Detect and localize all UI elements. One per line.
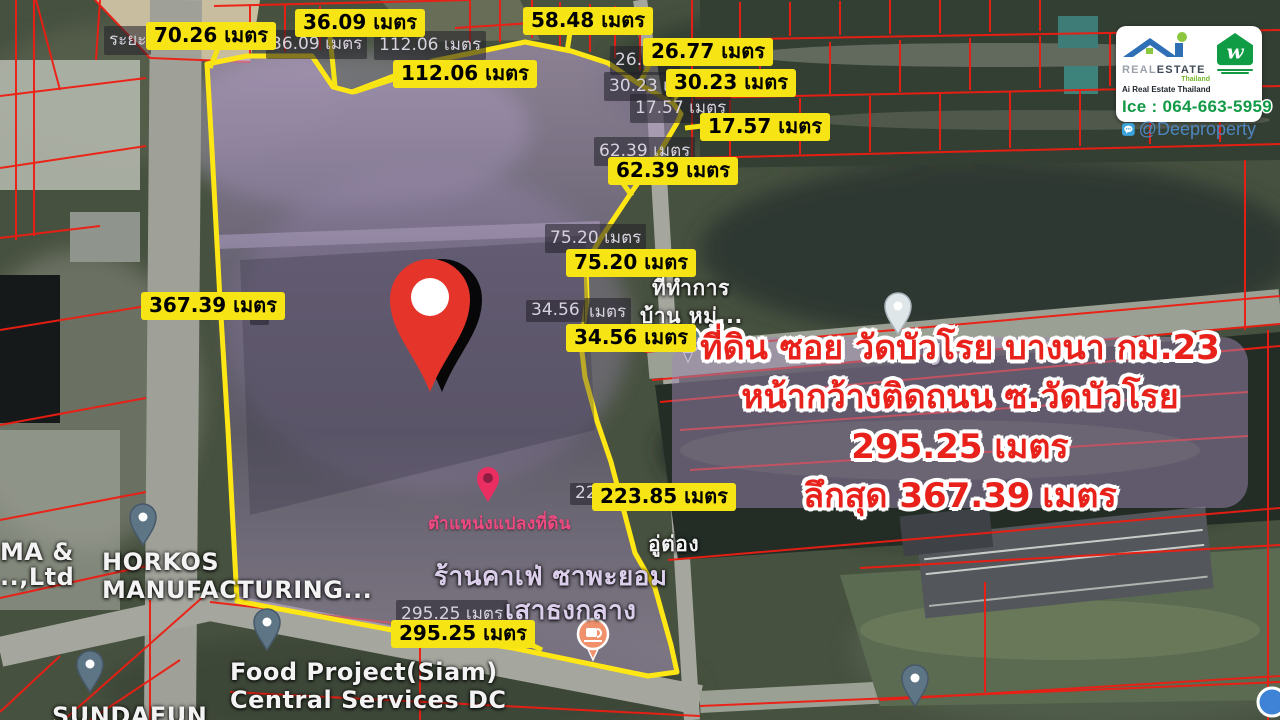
contact-phone: Ice : 064-663-5959 — [1122, 97, 1256, 117]
realestate-house-icon — [1122, 32, 1196, 60]
line-account-id: @Deeproperty — [1139, 119, 1256, 140]
w-logo-fineprint — [1221, 72, 1249, 74]
poi-pin-dot — [263, 618, 272, 627]
building-block — [0, 60, 140, 190]
realestate-wordmark: REALESTATE — [1122, 65, 1210, 76]
map-place-ma-1: MA & — [0, 538, 74, 566]
listing-image: ระยะ 36.09 เมตร 112.06 เมตร 26.77 เ 30.2… — [0, 0, 1280, 720]
w-house-icon: w — [1216, 32, 1254, 68]
w-logo: w — [1214, 32, 1256, 74]
info-line-1: ที่ดิน ซอย วัดบัวโรย บางนา กม.23 — [672, 324, 1248, 373]
measure-callout-223-85: 223.85 เมตร — [592, 483, 736, 511]
info-line-3: ลึกสุด 367.39 เมตร — [672, 472, 1248, 521]
pin-inner-circle — [411, 278, 449, 316]
map-place-garage: อู่ต่อง — [648, 528, 699, 561]
poi-pin-dot — [139, 513, 148, 522]
property-info-box: ที่ดิน ซอย วัดบัวโรย บางนา กม.23 หน้ากว้… — [672, 337, 1248, 508]
line-chat-icon — [1122, 121, 1135, 138]
realestate-thailand: Thailand — [1122, 76, 1210, 83]
realestate-tagline: Ai Real Estate Thailand — [1122, 85, 1210, 94]
poi-pin-dot — [894, 302, 903, 311]
poi-pin-dot — [86, 660, 95, 669]
dark-building — [0, 275, 60, 423]
measure-callout-58-48: 58.48 เมตร — [523, 7, 653, 35]
poi-pin-dot — [911, 674, 920, 683]
map-place-foodproject-1: Food Project(Siam) — [230, 658, 498, 686]
measure-callout-75-20: 75.20 เมตร — [566, 249, 696, 277]
branding-card: REALESTATE Thailand Ai Real Estate Thail… — [1116, 26, 1262, 122]
building-block — [70, 212, 140, 262]
measure-callout-70-26: 70.26 เมตร — [146, 22, 276, 50]
map-place-horkos-1: HORKOS — [102, 548, 219, 576]
measure-callout-17-57: 17.57 เมตร — [700, 113, 830, 141]
measure-callout-62-39: 62.39 เมตร — [608, 157, 738, 185]
measure-callout-30-23: 30.23 เมตร — [666, 69, 796, 97]
measure-callout-112-06: 112.06 เมตร — [393, 60, 537, 88]
map-measure-label: ระยะ — [104, 26, 151, 55]
field-streak — [860, 600, 1260, 660]
map-place-sundafun: SUNDAFUN — [52, 702, 207, 720]
measure-callout-36-09: 36.09 เมตร — [295, 9, 425, 37]
w-logo-fineprint — [1217, 69, 1253, 71]
map-place-foodproject-2: Central Services DC — [230, 686, 507, 714]
teal-pond — [1058, 16, 1098, 48]
realestate-logo: REALESTATE Thailand Ai Real Estate Thail… — [1122, 32, 1210, 94]
map-place-plot-position: ตำแหน่งแปลงที่ดิน — [428, 510, 571, 537]
measure-callout-34-56: 34.56 เมตร — [566, 324, 696, 352]
map-measure-label: 34.56 — [526, 300, 585, 322]
map-measure-label: เมตร — [584, 298, 631, 327]
map-place-ma-2: ..,Ltd — [0, 563, 74, 591]
info-line-2: หน้ากว้างติดถนน ซ.วัดบัวโรย 295.25 เมตร — [672, 373, 1248, 472]
measure-callout-26-77: 26.77 เมตร — [643, 38, 773, 66]
svg-text:w: w — [1226, 40, 1244, 64]
poi-circle-blue[interactable] — [1258, 688, 1280, 716]
measure-callout-295-25: 295.25 เมตร — [391, 620, 535, 648]
map-place-horkos-2: MANUFACTURING... — [102, 576, 372, 604]
measure-callout-367-39: 367.39 เมตร — [141, 292, 285, 320]
